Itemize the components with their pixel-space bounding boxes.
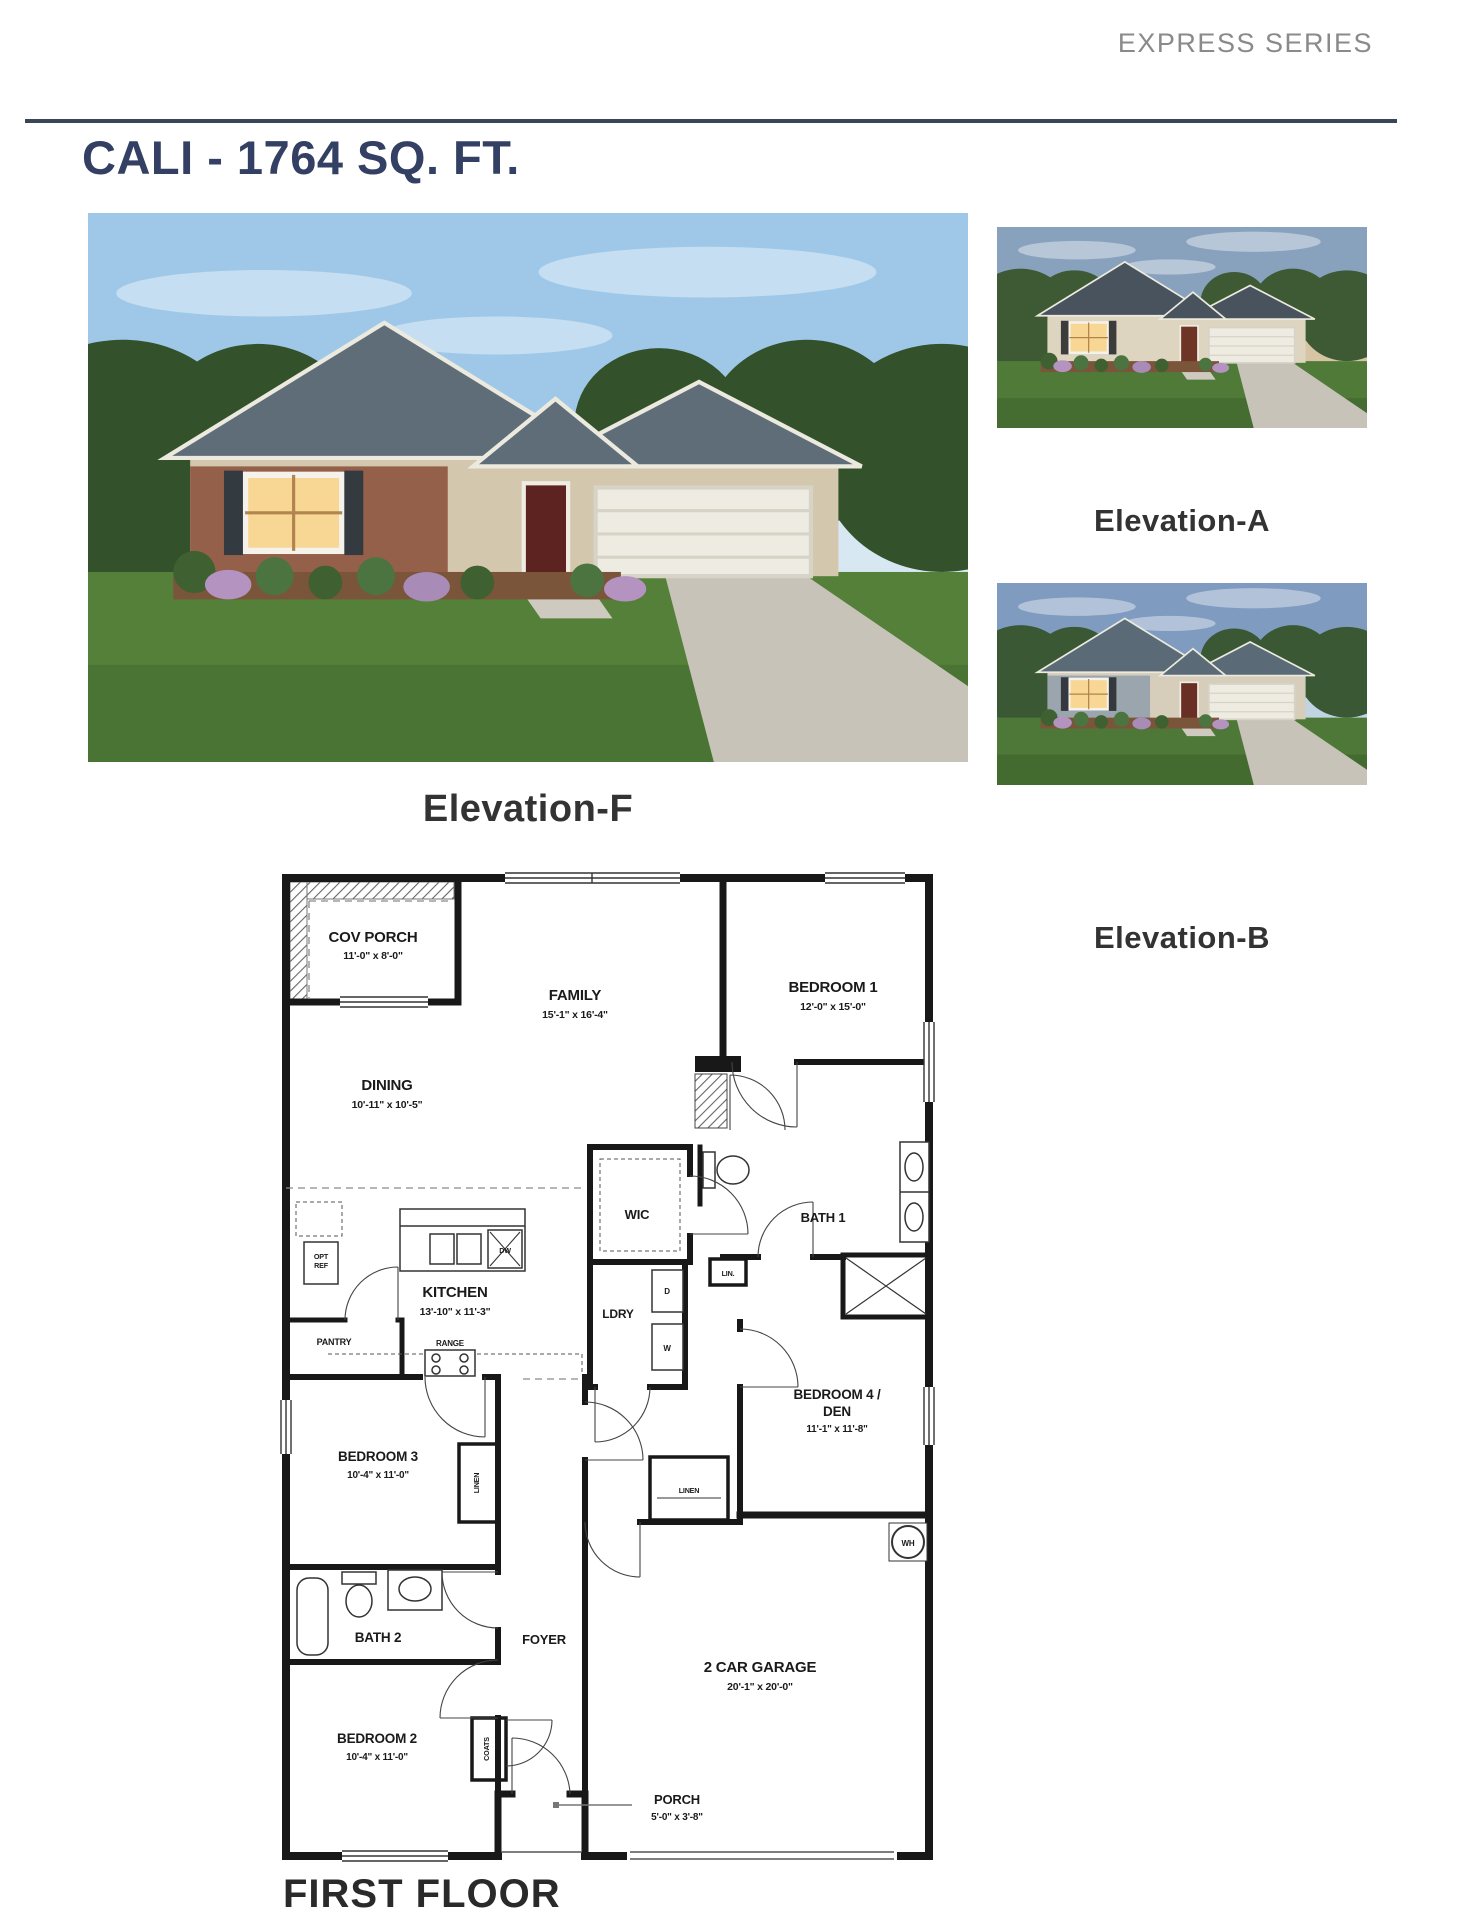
plan-closets: [459, 1259, 746, 1780]
fixture-label-dishwasher: DW: [499, 1246, 511, 1255]
room-label-porch: PORCH: [654, 1792, 700, 1807]
elevation-a-label: Elevation-A: [997, 503, 1367, 539]
room-label-foyer: FOYER: [522, 1632, 567, 1647]
room-dims-porch: 5'-0" x 3'-8": [651, 1812, 703, 1823]
closet-label-linen-hall: LINEN: [679, 1486, 700, 1495]
first-floor-label: FIRST FLOOR: [283, 1872, 561, 1917]
series-label: EXPRESS SERIES: [1118, 28, 1373, 59]
elevation-b-label: Elevation-B: [997, 920, 1367, 956]
plan-walls: [286, 878, 929, 1856]
closet-label-coats: COATS: [482, 1737, 491, 1761]
elevation-b-photo: [997, 583, 1367, 785]
fixture-label-range: RANGE: [436, 1339, 465, 1348]
brochure-page: EXPRESS SERIES CALI - 1764 SQ. FT. Eleva…: [0, 0, 1483, 1920]
room-label-bedroom4-line1: BEDROOM 4 /: [793, 1387, 881, 1402]
floor-plan-drawing: COV PORCH 11'-0" x 8'-0" FAMILY 15'-1" x…: [280, 872, 935, 1862]
room-label-ldry: LDRY: [602, 1307, 634, 1321]
elevation-a-photo: [997, 227, 1367, 428]
floor-plan: COV PORCH 11'-0" x 8'-0" FAMILY 15'-1" x…: [280, 872, 935, 1862]
house-illustration-b: [997, 583, 1367, 785]
room-label-family: FAMILY: [549, 987, 602, 1004]
room-label-wic: WIC: [625, 1207, 650, 1222]
house-illustration-f: [88, 213, 968, 762]
room-label-dining: DINING: [361, 1077, 412, 1094]
room-dims-family: 15'-1" x 16'-4": [542, 1009, 608, 1021]
room-label-pantry: PANTRY: [317, 1337, 352, 1347]
fixture-label-dryer: D: [664, 1287, 670, 1296]
room-label-cov-porch: COV PORCH: [328, 929, 417, 946]
room-dims-kitchen: 13'-10" x 11'-3": [420, 1306, 491, 1318]
room-dims-bedroom3: 10'-4" x 11'-0": [347, 1470, 409, 1481]
room-label-bedroom3: BEDROOM 3: [338, 1449, 419, 1464]
room-label-garage: 2 CAR GARAGE: [704, 1659, 817, 1676]
porch-leader-arrow: [553, 1802, 632, 1808]
room-label-bath2: BATH 2: [355, 1630, 402, 1645]
room-dims-bedroom2: 10'-4" x 11'-0": [346, 1752, 408, 1763]
room-label-bedroom1: BEDROOM 1: [788, 979, 877, 996]
room-label-lin: LIN.: [722, 1269, 735, 1278]
elevation-f-photo: [88, 213, 968, 762]
header-rule: [25, 119, 1397, 123]
room-dims-garage: 20'-1" x 20'-0": [727, 1681, 793, 1693]
room-dims-bedroom4: 11'-1" x 11'-8": [806, 1424, 868, 1435]
room-label-kitchen: KITCHEN: [422, 1284, 487, 1301]
closet-label-linen-bedroom3: LINEN: [472, 1473, 481, 1494]
fixture-label-washer: W: [663, 1344, 671, 1353]
room-dims-dining: 10'-11" x 10'-5": [352, 1099, 423, 1111]
room-dims-bedroom1: 12'-0" x 15'-0": [800, 1001, 866, 1013]
page-title: CALI - 1764 SQ. FT.: [82, 130, 520, 185]
fixture-label-ref: REF: [314, 1261, 329, 1270]
room-label-bedroom2: BEDROOM 2: [337, 1731, 417, 1746]
fixture-label-water-heater: WH: [902, 1539, 915, 1548]
fixture-label-opt: OPT: [314, 1252, 329, 1261]
room-label-bedroom4-line2: DEN: [823, 1404, 851, 1419]
room-dims-cov-porch: 11'-0" x 8'-0": [343, 950, 403, 962]
room-label-bath1: BATH 1: [801, 1210, 846, 1225]
house-illustration-a: [997, 227, 1367, 428]
elevation-f-label: Elevation-F: [88, 788, 968, 831]
